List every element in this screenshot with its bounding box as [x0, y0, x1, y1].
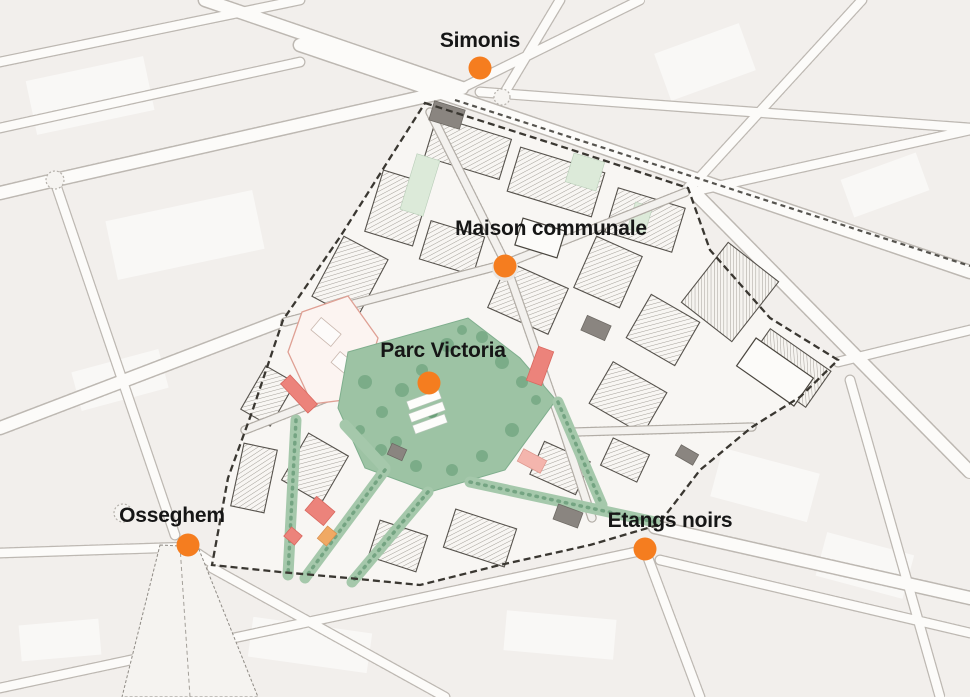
poi-dot-simonis[interactable] — [469, 57, 492, 80]
poi-label-etangs-noirs: Etangs noirs — [608, 509, 733, 533]
poi-label-maison-communale: Maison communale — [455, 217, 647, 241]
poi-dot-etangs-noirs[interactable] — [634, 538, 657, 561]
poi-dot-osseghem[interactable] — [177, 534, 200, 557]
map-viewport: Simonis Maison communale Parc Victoria O… — [0, 0, 970, 697]
poi-dot-parc-victoria[interactable] — [418, 372, 441, 395]
poi-dot-maison-communale[interactable] — [494, 255, 517, 278]
poi-label-simonis: Simonis — [440, 29, 520, 53]
poi-label-osseghem: Osseghem — [119, 504, 225, 528]
poi-label-parc-victoria: Parc Victoria — [380, 339, 505, 363]
